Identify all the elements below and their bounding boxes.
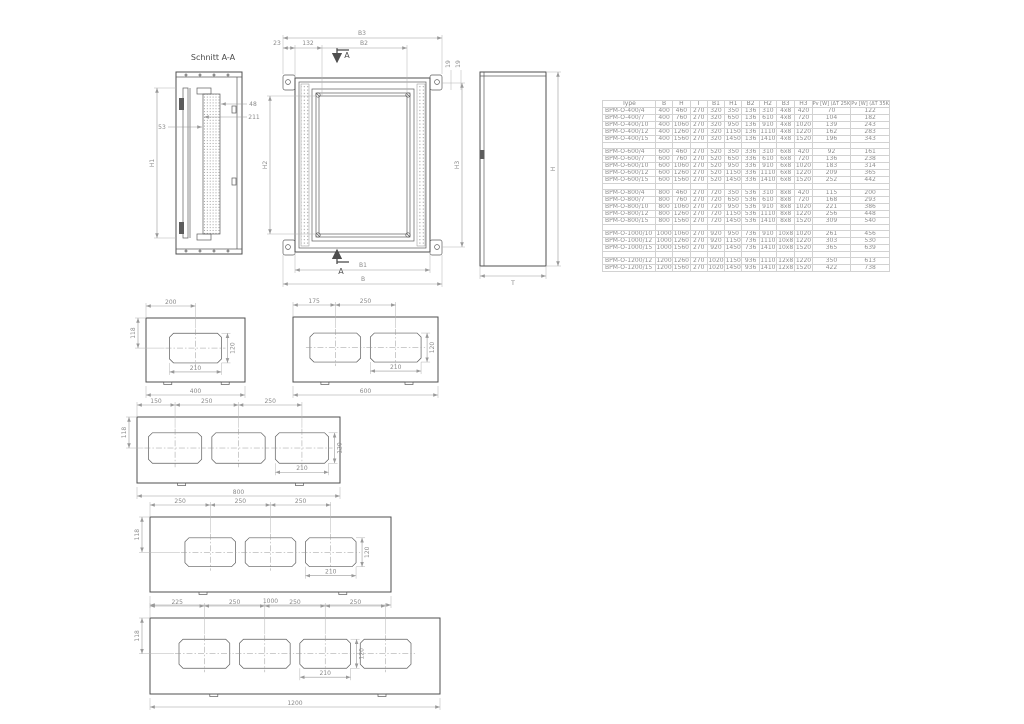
dimension-table-grid: TypeBHTB1H1B2H2B3H3Pv [W] (ΔT 25K)Pv [W]… <box>602 100 890 272</box>
table-cell: 800 <box>655 211 672 218</box>
table-cell: 400 <box>655 129 672 136</box>
table-row: BPM-O-1000/101000106027092095073691010x8… <box>603 231 890 238</box>
table-cell: 520 <box>707 163 724 170</box>
dim-label: 210 <box>325 569 337 576</box>
table-cell: 1020 <box>795 163 812 170</box>
table-cell: 1220 <box>795 258 812 265</box>
table-cell: 520 <box>707 149 724 156</box>
table-cell: 8x8 <box>777 197 795 204</box>
dim-label: 118 <box>130 327 137 339</box>
table-cell: 448 <box>851 211 890 218</box>
dim-label: H1 <box>149 159 156 168</box>
table-cell: 1020 <box>707 265 724 272</box>
table-cell: 161 <box>851 149 890 156</box>
table-cell: 1020 <box>707 258 724 265</box>
dim-label: 53 <box>158 124 166 131</box>
table-cell: 365 <box>851 170 890 177</box>
table-cell: 920 <box>707 231 724 238</box>
side-view: H T <box>480 72 561 287</box>
table-cell: 8x8 <box>777 218 795 225</box>
table-cell: BPM-O-600/12 <box>603 170 656 177</box>
table-cell: 460 <box>673 190 690 197</box>
table-cell: 720 <box>795 115 812 122</box>
table-cell: 1520 <box>795 265 812 272</box>
table-cell: 293 <box>851 197 890 204</box>
table-cell: 365 <box>812 245 851 252</box>
table-cell: 1560 <box>673 245 690 252</box>
table-cell: 1220 <box>795 170 812 177</box>
table-cell: 460 <box>673 149 690 156</box>
table-row: BPM-O-800/78007602707206505366108x872016… <box>603 197 890 204</box>
table-cell: 4x8 <box>777 115 795 122</box>
table-cell: 520 <box>707 156 724 163</box>
table-cell: 309 <box>812 218 851 225</box>
dim-label: B <box>361 276 365 283</box>
table-cell: 610 <box>759 156 776 163</box>
table-cell: 336 <box>742 163 759 170</box>
table-cell: 600 <box>655 177 672 184</box>
mounting-plate <box>203 94 220 234</box>
table-cell: 400 <box>655 136 672 143</box>
table-cell: BPM-O-1200/15 <box>603 265 656 272</box>
table-cell: 536 <box>742 197 759 204</box>
table-cell: 1150 <box>725 129 742 136</box>
table-cell: 310 <box>759 149 776 156</box>
table-cell: 1450 <box>725 177 742 184</box>
table-row: BPM-O-400/74007602703206501366104x872010… <box>603 115 890 122</box>
table-cell: 1410 <box>759 265 776 272</box>
table-cell: 122 <box>851 108 890 115</box>
latch <box>480 150 485 159</box>
dim-label: 250 <box>235 498 247 505</box>
table-cell: 1200 <box>655 265 672 272</box>
table-cell: 1060 <box>673 122 690 129</box>
section-marker-top: A <box>337 48 350 62</box>
table-cell: 610 <box>759 197 776 204</box>
dim-label: 250 <box>295 498 307 505</box>
table-cell: 270 <box>690 136 707 143</box>
table-cell: 139 <box>812 122 851 129</box>
table-cell: 720 <box>707 204 724 211</box>
table-cell: 639 <box>851 245 890 252</box>
table-cell: 386 <box>851 204 890 211</box>
table-header-cell: T <box>690 101 707 108</box>
table-cell: 270 <box>690 238 707 245</box>
table-cell: 536 <box>742 211 759 218</box>
table-cell: 1220 <box>795 129 812 136</box>
table-cell: 209 <box>812 170 851 177</box>
table-cell: 136 <box>742 115 759 122</box>
table-cell: 530 <box>851 238 890 245</box>
table-cell: 950 <box>725 163 742 170</box>
dim-label: 210 <box>390 364 402 371</box>
dim-label: 175 <box>308 298 320 305</box>
flange-plate-800: 150250250118120210800 <box>121 398 344 499</box>
table-cell: 136 <box>742 129 759 136</box>
section-letter: A <box>344 51 350 60</box>
table-cell: 420 <box>795 108 812 115</box>
table-cell: 1110 <box>759 211 776 218</box>
table-cell: BPM-O-600/15 <box>603 177 656 184</box>
table-cell: 270 <box>690 258 707 265</box>
dim-label: 200 <box>165 299 177 306</box>
dim-label: 19 <box>445 60 452 68</box>
dim-label: 120 <box>364 546 371 558</box>
table-cell: 950 <box>725 204 742 211</box>
table-cell: 442 <box>851 177 890 184</box>
table-cell: 70 <box>812 108 851 115</box>
table-row: BPM-O-600/76007602705206503366106x872013… <box>603 156 890 163</box>
table-cell: 343 <box>851 136 890 143</box>
table-row: BPM-O-400/154001560270320145013614104x81… <box>603 136 890 143</box>
table-cell: 600 <box>655 163 672 170</box>
table-cell: 221 <box>812 204 851 211</box>
dim-label: 250 <box>201 398 213 405</box>
table-cell: 936 <box>742 258 759 265</box>
table-cell: 4x8 <box>777 136 795 143</box>
table-cell: 104 <box>812 115 851 122</box>
table-cell: 950 <box>725 231 742 238</box>
table-cell: 536 <box>742 204 759 211</box>
table-cell: 400 <box>655 122 672 129</box>
table-cell: 270 <box>690 231 707 238</box>
table-cell: 12x8 <box>777 265 795 272</box>
dim-label: 1000 <box>263 598 278 605</box>
table-cell: 1410 <box>759 245 776 252</box>
table-cell: 6x8 <box>777 156 795 163</box>
table-cell: 520 <box>707 177 724 184</box>
dim-label: T <box>510 280 515 287</box>
table-cell: 1200 <box>655 258 672 265</box>
table-cell: 910 <box>759 163 776 170</box>
table-cell: BPM-O-800/4 <box>603 190 656 197</box>
table-cell: 270 <box>690 108 707 115</box>
flange-plate-1200: 2252502502501181202101200 <box>134 599 440 710</box>
table-header-cell: H1 <box>725 101 742 108</box>
table-cell: 1450 <box>725 218 742 225</box>
table-cell: BPM-O-400/7 <box>603 115 656 122</box>
table-cell: 136 <box>742 108 759 115</box>
table-header-cell: Pv [W] (ΔT 35K) <box>851 101 890 108</box>
table-cell: 168 <box>812 197 851 204</box>
dim-label: B1 <box>359 262 367 269</box>
table-cell: 1410 <box>759 177 776 184</box>
table-header-cell: H2 <box>759 101 776 108</box>
table-cell: 1520 <box>795 177 812 184</box>
dim-label: 120 <box>359 648 366 660</box>
table-cell: BPM-O-400/4 <box>603 108 656 115</box>
table-header-cell: B3 <box>777 101 795 108</box>
table-cell: 270 <box>690 156 707 163</box>
dim-label: B2 <box>360 40 368 47</box>
table-cell: 256 <box>812 211 851 218</box>
table-row: BPM-O-600/1060010602705209503369106x8102… <box>603 163 890 170</box>
table-row: BPM-O-1000/15100015602709201450736141010… <box>603 245 890 252</box>
table-cell: 1520 <box>795 245 812 252</box>
table-cell: 1000 <box>655 245 672 252</box>
table-cell: 1220 <box>795 238 812 245</box>
table-cell: BPM-O-400/15 <box>603 136 656 143</box>
table-cell: BPM-O-800/15 <box>603 218 656 225</box>
table-cell: 12x8 <box>777 258 795 265</box>
dim-label: 120 <box>229 342 236 354</box>
table-row: BPM-O-600/46004602705203503363106x842092… <box>603 149 890 156</box>
table-cell: BPM-O-600/4 <box>603 149 656 156</box>
table-cell: 650 <box>725 197 742 204</box>
table-cell: 1260 <box>673 211 690 218</box>
table-cell: 936 <box>742 265 759 272</box>
table-cell: 1450 <box>725 265 742 272</box>
section-marker-bottom: A <box>337 250 349 276</box>
table-cell: 520 <box>707 170 724 177</box>
dimension-table: TypeBHTB1H1B2H2B3H3Pv [W] (ΔT 25K)Pv [W]… <box>602 100 890 272</box>
table-row: BPM-O-600/126001260270520115033611106x81… <box>603 170 890 177</box>
dim-label: 210 <box>319 670 331 677</box>
table-cell: 310 <box>759 108 776 115</box>
dim-label: 400 <box>190 388 202 395</box>
table-row: BPM-O-400/44004602703203501363104x842070… <box>603 108 890 115</box>
table-cell: 600 <box>655 149 672 156</box>
dim-label: 48 <box>249 101 257 108</box>
table-cell: 196 <box>812 136 851 143</box>
table-cell: 736 <box>742 238 759 245</box>
table-cell: 1410 <box>759 218 776 225</box>
dim-label: 250 <box>174 498 186 505</box>
table-row: BPM-O-600/156001560270520145033614106x81… <box>603 177 890 184</box>
table-cell: 6x8 <box>777 149 795 156</box>
table-cell: 162 <box>812 129 851 136</box>
dim-label: 225 <box>171 599 183 606</box>
perforated-rail-left <box>301 84 309 246</box>
table-cell: 270 <box>690 163 707 170</box>
table-cell: 115 <box>812 190 851 197</box>
table-cell: 6x8 <box>777 163 795 170</box>
table-header-cell: H <box>673 101 690 108</box>
table-row: BPM-O-800/158001560270720145053614108x81… <box>603 218 890 225</box>
table-cell: 1060 <box>673 231 690 238</box>
table-cell: 422 <box>812 265 851 272</box>
flange-plate-400: 200118120210400 <box>130 299 245 398</box>
table-cell: 1410 <box>759 136 776 143</box>
flange-plate-1000: 2502502501181202101000 <box>134 498 391 608</box>
table-cell: 720 <box>795 197 812 204</box>
dim-label: H <box>550 167 557 172</box>
dim-label: 118 <box>134 630 141 642</box>
perforated-rail-right <box>417 84 425 246</box>
flange-plates: 200118120210400 175250120210600 15025025… <box>121 298 440 710</box>
table-cell: 420 <box>795 149 812 156</box>
table-cell: 270 <box>690 149 707 156</box>
table-cell: 136 <box>742 122 759 129</box>
table-row: BPM-O-1000/12100012602709201150736111010… <box>603 238 890 245</box>
table-cell: 1260 <box>673 170 690 177</box>
table-cell: 920 <box>707 245 724 252</box>
table-cell: 320 <box>707 108 724 115</box>
table-cell: 320 <box>707 122 724 129</box>
dim-label: 210 <box>296 465 308 472</box>
table-cell: 1450 <box>725 245 742 252</box>
table-cell: 8x8 <box>777 204 795 211</box>
table-header-cell: B2 <box>742 101 759 108</box>
table-cell: 460 <box>673 108 690 115</box>
table-cell: 270 <box>690 170 707 177</box>
table-cell: 736 <box>742 231 759 238</box>
table-cell: 238 <box>851 156 890 163</box>
table-cell: 760 <box>673 156 690 163</box>
dim-label: 150 <box>150 398 162 405</box>
table-cell: BPM-O-1000/15 <box>603 245 656 252</box>
table-cell: 800 <box>655 218 672 225</box>
table-cell: 720 <box>707 190 724 197</box>
table-cell: 270 <box>690 129 707 136</box>
table-header-cell: B <box>655 101 672 108</box>
section-letter: A <box>338 267 344 276</box>
table-cell: 270 <box>690 204 707 211</box>
table-cell: 1150 <box>725 170 742 177</box>
table-cell: BPM-O-600/10 <box>603 163 656 170</box>
table-cell: 540 <box>851 218 890 225</box>
table-header-cell: Type <box>603 101 656 108</box>
door-panel <box>183 88 188 238</box>
table-cell: 136 <box>812 156 851 163</box>
table-cell: 1020 <box>795 122 812 129</box>
table-cell: 243 <box>851 122 890 129</box>
table-cell: 650 <box>725 156 742 163</box>
table-cell: 303 <box>812 238 851 245</box>
table-cell: 336 <box>742 177 759 184</box>
section-title: Schnitt A-A <box>191 53 236 62</box>
table-cell: 270 <box>690 265 707 272</box>
table-body: BPM-O-400/44004602703203501363104x842070… <box>603 108 890 272</box>
table-row: BPM-O-800/1080010602707209505369108x8102… <box>603 204 890 211</box>
dim-label: 23 <box>273 40 281 47</box>
table-cell: 1260 <box>673 238 690 245</box>
table-cell: BPM-O-1200/12 <box>603 258 656 265</box>
table-row: BPM-O-800/48004602707203505363108x842011… <box>603 190 890 197</box>
dim-label: 118 <box>134 529 141 541</box>
table-cell: 800 <box>655 190 672 197</box>
table-cell: 1150 <box>725 258 742 265</box>
table-cell: 1000 <box>655 238 672 245</box>
dim-label: 19 <box>455 60 462 68</box>
table-cell: 1560 <box>673 265 690 272</box>
dim-label: 1200 <box>287 700 302 707</box>
dim-label: 250 <box>350 599 362 606</box>
table-cell: 270 <box>690 190 707 197</box>
table-cell: BPM-O-800/12 <box>603 211 656 218</box>
hinge <box>179 98 184 110</box>
dim-label: 800 <box>233 489 245 496</box>
table-cell: 800 <box>655 197 672 204</box>
dim-label: 120 <box>429 342 436 354</box>
table-cell: 920 <box>707 238 724 245</box>
table-cell: BPM-O-1000/10 <box>603 231 656 238</box>
technical-drawing-page: Schnitt A-A H1 48 211 53 <box>0 0 1024 724</box>
table-cell: 336 <box>742 170 759 177</box>
table-cell: 1110 <box>759 238 776 245</box>
table-row: BPM-O-1200/15120015602701020145093614101… <box>603 265 890 272</box>
table-cell: 400 <box>655 108 672 115</box>
table-cell: 950 <box>725 122 742 129</box>
corner-screws <box>316 93 410 237</box>
dim-label: 250 <box>289 599 301 606</box>
table-header-cell: B1 <box>707 101 724 108</box>
table-cell: 1020 <box>795 231 812 238</box>
table-cell: 1220 <box>795 211 812 218</box>
table-cell: 1560 <box>673 218 690 225</box>
table-cell: 92 <box>812 149 851 156</box>
table-cell: 738 <box>851 265 890 272</box>
flange-plate-600: 175250120210600 <box>293 298 438 398</box>
table-cell: 536 <box>742 190 759 197</box>
table-cell: 720 <box>707 211 724 218</box>
table-cell: 600 <box>655 170 672 177</box>
table-cell: 1450 <box>725 136 742 143</box>
table-cell: 310 <box>759 190 776 197</box>
table-cell: BPM-O-400/10 <box>603 122 656 129</box>
table-cell: 910 <box>759 204 776 211</box>
table-cell: 1110 <box>759 258 776 265</box>
table-header-cell: H3 <box>795 101 812 108</box>
table-cell: 350 <box>725 149 742 156</box>
dim-label: B3 <box>358 30 366 37</box>
table-cell: 1020 <box>795 204 812 211</box>
table-cell: 182 <box>851 115 890 122</box>
table-cell: 270 <box>690 177 707 184</box>
side-outline <box>480 72 546 266</box>
table-cell: BPM-O-1000/12 <box>603 238 656 245</box>
table-cell: 600 <box>655 156 672 163</box>
table-cell: 350 <box>812 258 851 265</box>
table-cell: 6x8 <box>777 170 795 177</box>
table-cell: 1150 <box>725 238 742 245</box>
table-cell: BPM-O-600/7 <box>603 156 656 163</box>
table-cell: BPM-O-800/10 <box>603 204 656 211</box>
table-cell: 1060 <box>673 204 690 211</box>
table-cell: 4x8 <box>777 108 795 115</box>
table-cell: 270 <box>690 115 707 122</box>
table-cell: 350 <box>725 108 742 115</box>
table-cell: 10x8 <box>777 231 795 238</box>
hinge <box>179 222 184 234</box>
table-cell: 800 <box>655 204 672 211</box>
table-row: BPM-O-1200/12120012602701020115093611101… <box>603 258 890 265</box>
table-cell: 283 <box>851 129 890 136</box>
dim-label: 250 <box>360 298 372 305</box>
table-cell: 270 <box>690 211 707 218</box>
table-cell: 6x8 <box>777 177 795 184</box>
table-cell: 1060 <box>673 163 690 170</box>
table-cell: 1150 <box>725 211 742 218</box>
table-cell: 400 <box>655 115 672 122</box>
table-cell: 610 <box>759 115 776 122</box>
table-cell: 8x8 <box>777 190 795 197</box>
table-row: BPM-O-800/128001260270720115053611108x81… <box>603 211 890 218</box>
dim-label: 132 <box>302 40 314 47</box>
table-cell: 4x8 <box>777 129 795 136</box>
table-cell: 1260 <box>673 258 690 265</box>
table-cell: 650 <box>725 115 742 122</box>
table-cell: 1110 <box>759 129 776 136</box>
table-cell: 456 <box>851 231 890 238</box>
table-cell: 320 <box>707 136 724 143</box>
table-cell: 4x8 <box>777 122 795 129</box>
dim-label: H2 <box>262 161 269 170</box>
door-window <box>319 96 407 234</box>
table-cell: 8x8 <box>777 211 795 218</box>
table-cell: 613 <box>851 258 890 265</box>
table-cell: 350 <box>725 190 742 197</box>
